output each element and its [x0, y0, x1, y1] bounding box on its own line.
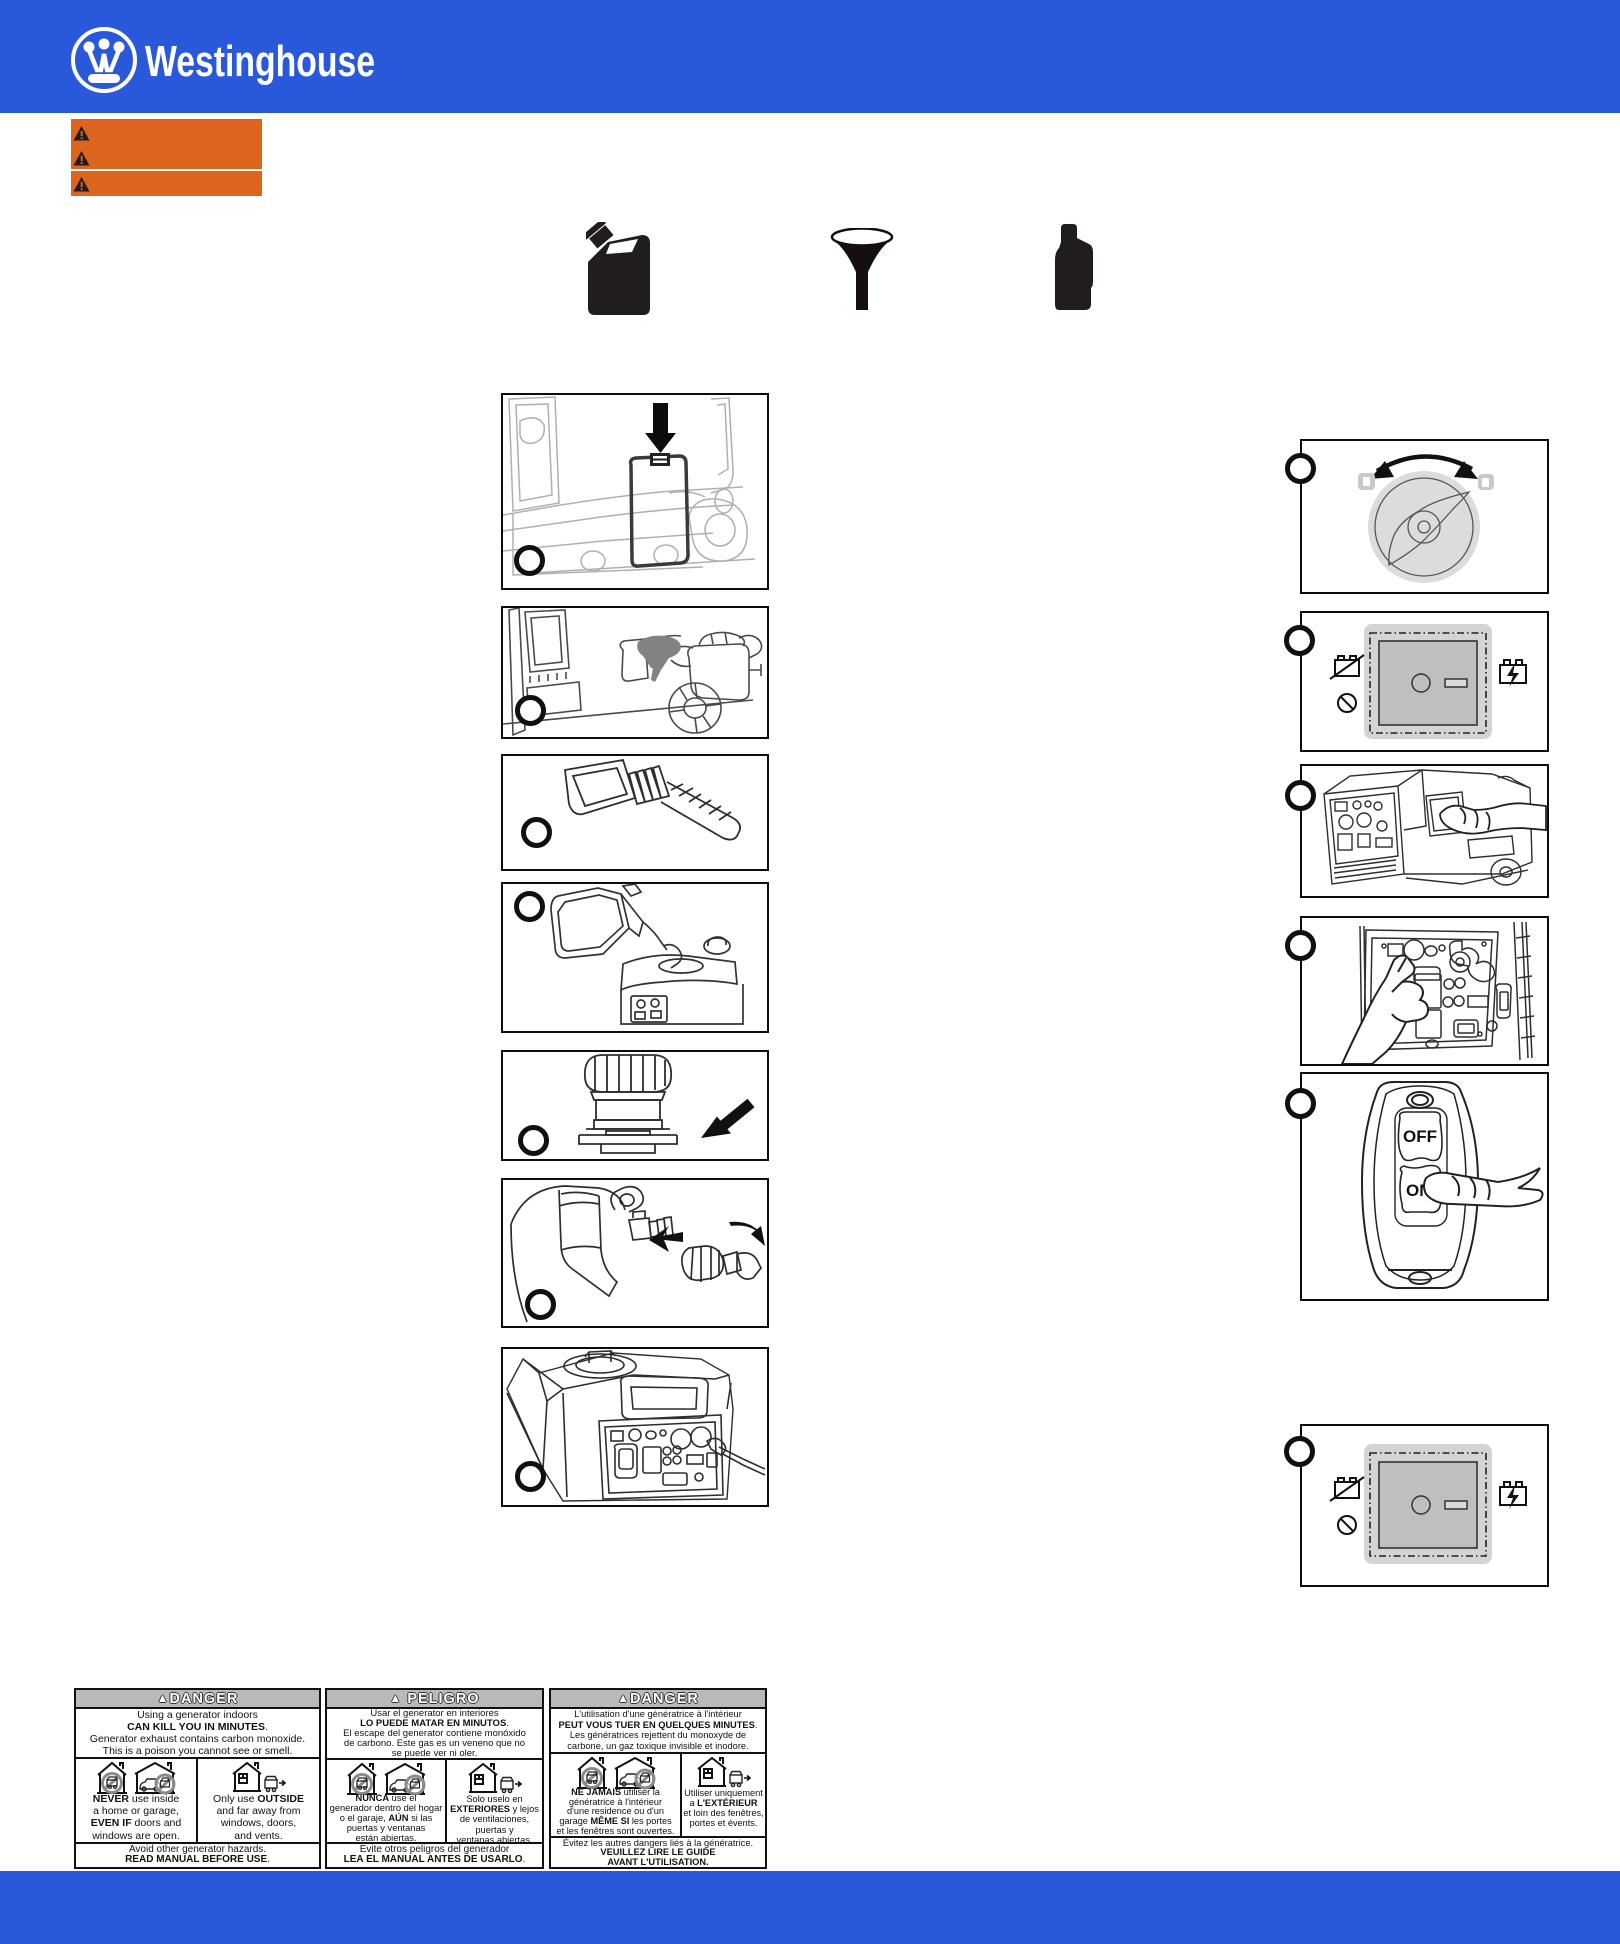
svg-text:Westinghouse: Westinghouse: [145, 37, 375, 86]
svg-text:OFF: OFF: [1403, 1127, 1437, 1146]
